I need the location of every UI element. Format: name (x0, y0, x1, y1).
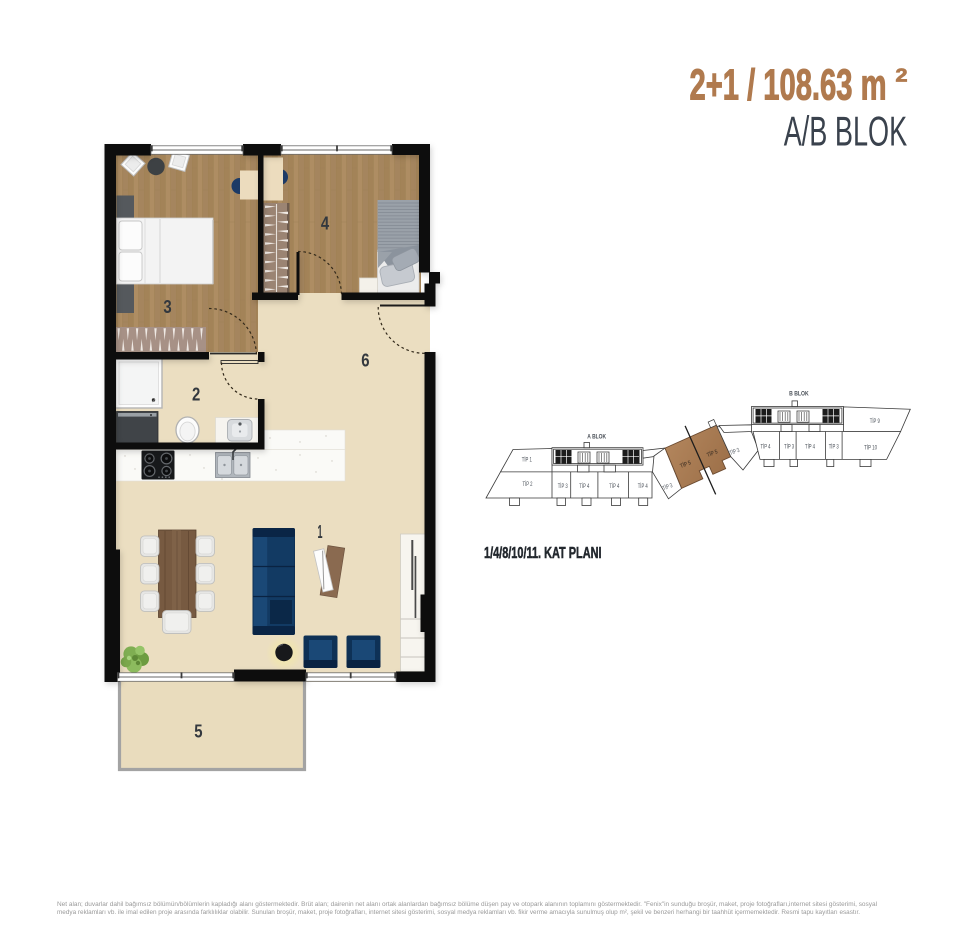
svg-text:1/4/8/10/11. KAT PLANI: 1/4/8/10/11. KAT PLANI (484, 545, 602, 562)
svg-text:TİP 3: TİP 3 (829, 444, 839, 451)
svg-text:B BLOK: B BLOK (789, 390, 809, 397)
svg-text:1: 1 (318, 521, 323, 542)
svg-text:5: 5 (194, 721, 202, 742)
svg-text:TİP 2: TİP 2 (523, 481, 533, 488)
svg-text:2+1 / 108.63 m: 2+1 / 108.63 m (690, 62, 887, 110)
svg-text:TİP 4: TİP 4 (761, 444, 771, 451)
svg-text:4: 4 (321, 213, 330, 234)
svg-text:TİP 4: TİP 4 (805, 444, 815, 451)
svg-text:TİP 1: TİP 1 (522, 457, 532, 464)
svg-text:TİP 4: TİP 4 (638, 483, 648, 490)
svg-text:6: 6 (361, 350, 369, 371)
svg-text:Net alan; duvarlar dahil bağım: Net alan; duvarlar dahil bağımsız bölümü… (57, 901, 877, 908)
svg-text:2: 2 (896, 65, 908, 86)
svg-text:TİP 4: TİP 4 (579, 483, 589, 490)
svg-text:TİP 9: TİP 9 (870, 418, 880, 425)
svg-text:TİP 3: TİP 3 (558, 483, 568, 490)
svg-text:A BLOK: A BLOK (587, 434, 606, 441)
svg-text:A/B BLOK: A/B BLOK (784, 108, 908, 155)
svg-text:TİP 4: TİP 4 (609, 483, 619, 490)
svg-text:medya reklamları vb. ile imal: medya reklamları vb. ile imal edilen pro… (57, 909, 860, 916)
svg-text:2: 2 (192, 384, 200, 405)
svg-text:TİP 3: TİP 3 (784, 444, 794, 451)
svg-text:3: 3 (163, 296, 171, 317)
svg-text:TİP 10: TİP 10 (864, 445, 877, 452)
